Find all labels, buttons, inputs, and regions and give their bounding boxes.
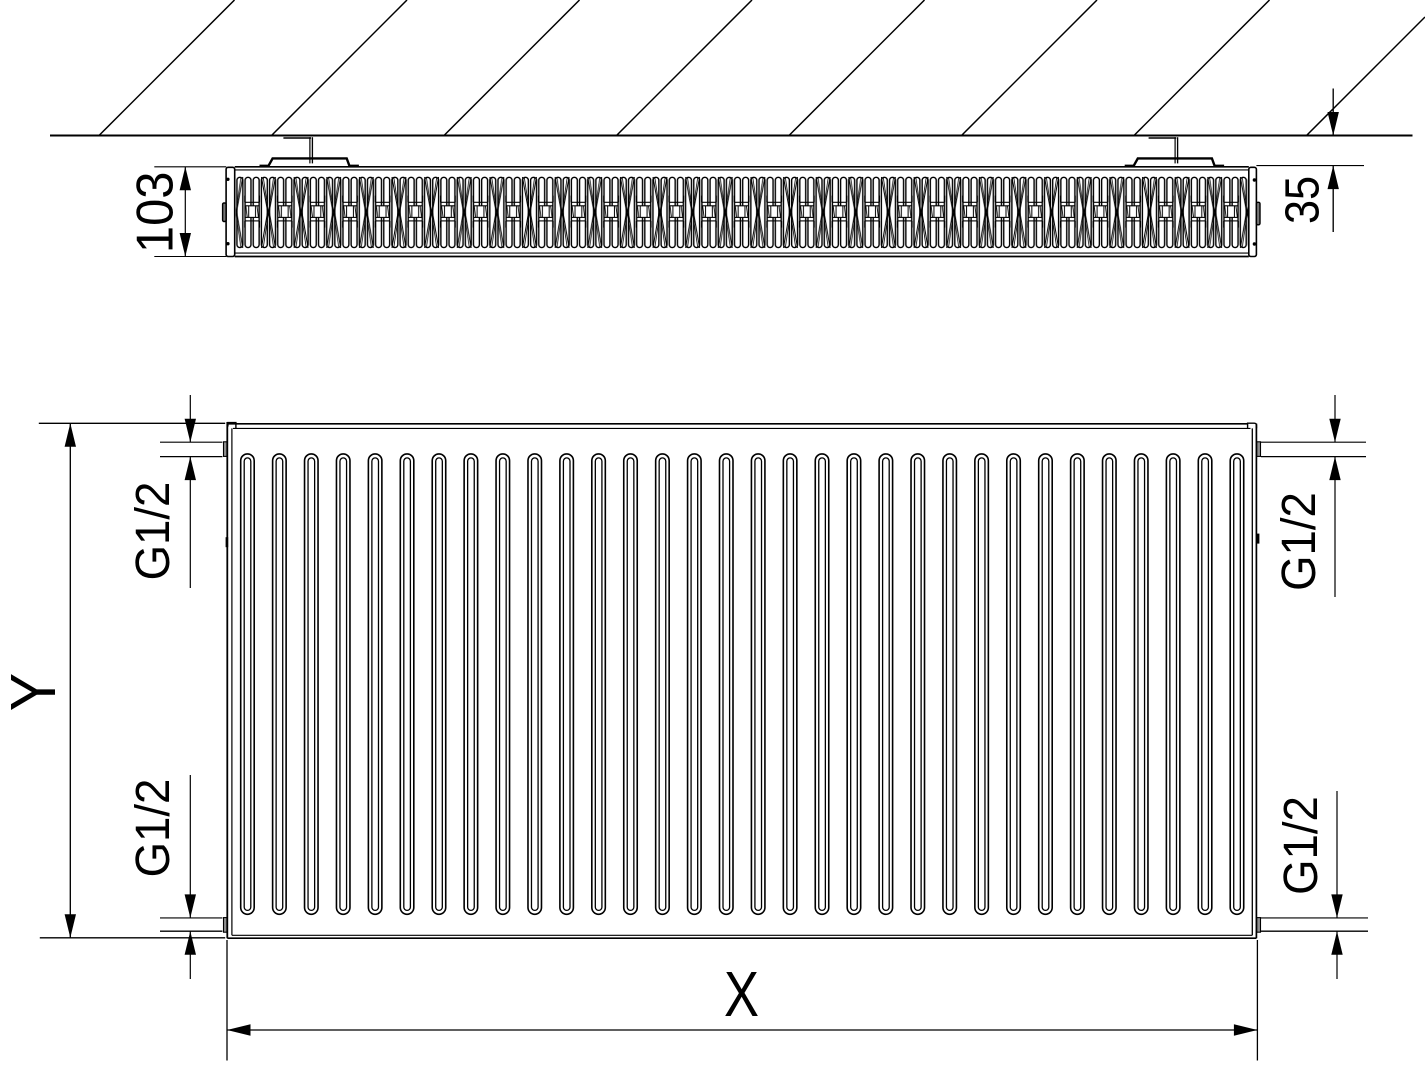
svg-text:X: X xyxy=(724,959,759,1030)
svg-text:G1/2: G1/2 xyxy=(1274,796,1327,895)
svg-text:G1/2: G1/2 xyxy=(1272,492,1325,591)
svg-text:Y: Y xyxy=(0,673,69,711)
svg-text:G1/2: G1/2 xyxy=(126,779,179,878)
svg-text:103: 103 xyxy=(125,172,184,254)
svg-text:35: 35 xyxy=(1275,176,1329,224)
svg-text:G1/2: G1/2 xyxy=(126,482,179,581)
